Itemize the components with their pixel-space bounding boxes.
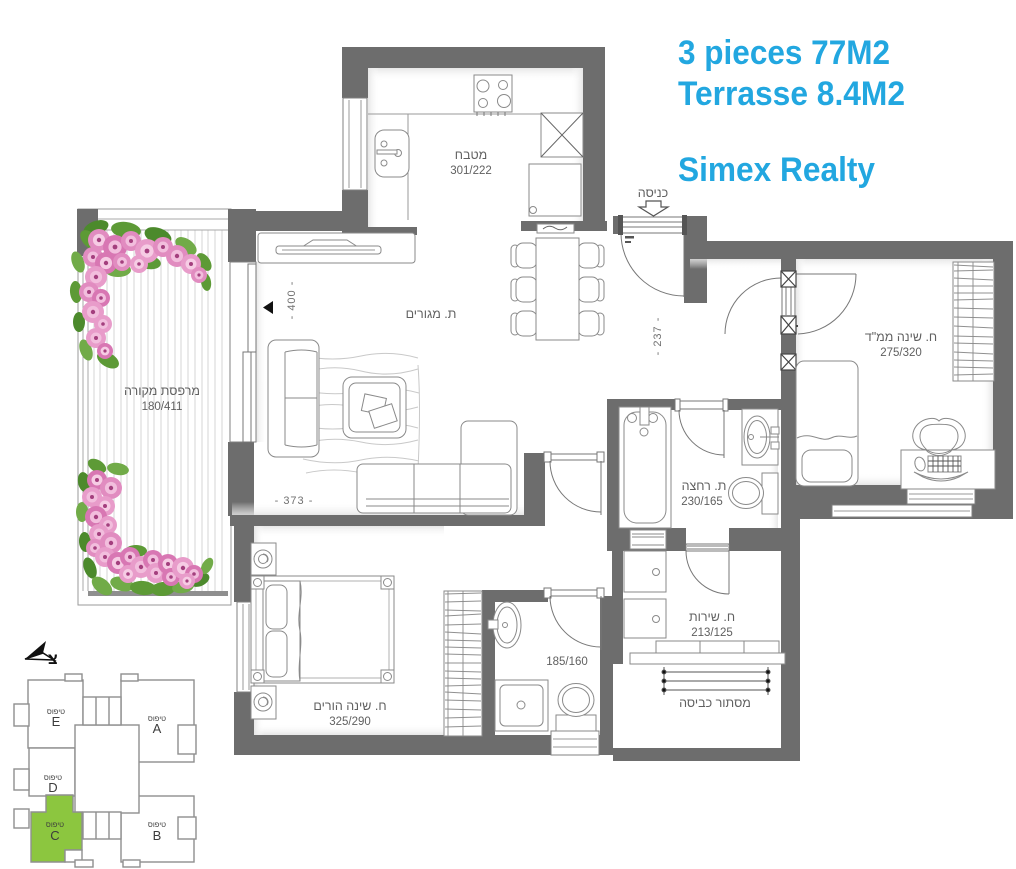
svg-text:180/411: 180/411: [142, 401, 183, 413]
svg-text:Terrasse 8.4M2: Terrasse 8.4M2: [678, 75, 905, 113]
svg-text:ח. שינה ממ"ד: ח. שינה ממ"ד: [865, 330, 937, 344]
svg-text:Simex Realty: Simex Realty: [678, 151, 875, 189]
svg-text:ח. שינה הורים: ח. שינה הורים: [313, 699, 386, 713]
svg-text:213/125: 213/125: [691, 627, 733, 639]
svg-text:- 237 -: - 237 -: [652, 317, 664, 356]
svg-text:צ: צ: [48, 651, 58, 668]
svg-text:ת. רחצה: ת. רחצה: [682, 479, 727, 493]
svg-text:185/160: 185/160: [546, 656, 588, 668]
svg-text:D: D: [48, 780, 57, 795]
svg-text:מטבח: מטבח: [455, 148, 487, 162]
svg-text:C: C: [50, 828, 59, 843]
svg-text:325/290: 325/290: [329, 716, 371, 728]
svg-text:ח. שירות: ח. שירות: [689, 610, 735, 624]
svg-text:כניסה: כניסה: [638, 186, 668, 200]
svg-text:- 373 -: - 373 -: [275, 495, 314, 507]
svg-text:301/222: 301/222: [450, 165, 492, 177]
svg-text:ת. מגורים: ת. מגורים: [406, 307, 457, 321]
svg-text:B: B: [153, 828, 162, 843]
svg-text:מרפסת מקורה: מרפסת מקורה: [124, 384, 200, 398]
svg-text:275/320: 275/320: [880, 347, 922, 359]
svg-text:E: E: [52, 714, 61, 729]
svg-text:- 400 -: - 400 -: [286, 281, 298, 320]
svg-text:מסתור כביסה: מסתור כביסה: [679, 696, 751, 710]
svg-text:A: A: [153, 721, 162, 736]
svg-text:3 pieces 77M2: 3 pieces 77M2: [678, 34, 890, 72]
svg-text:230/165: 230/165: [681, 496, 723, 508]
